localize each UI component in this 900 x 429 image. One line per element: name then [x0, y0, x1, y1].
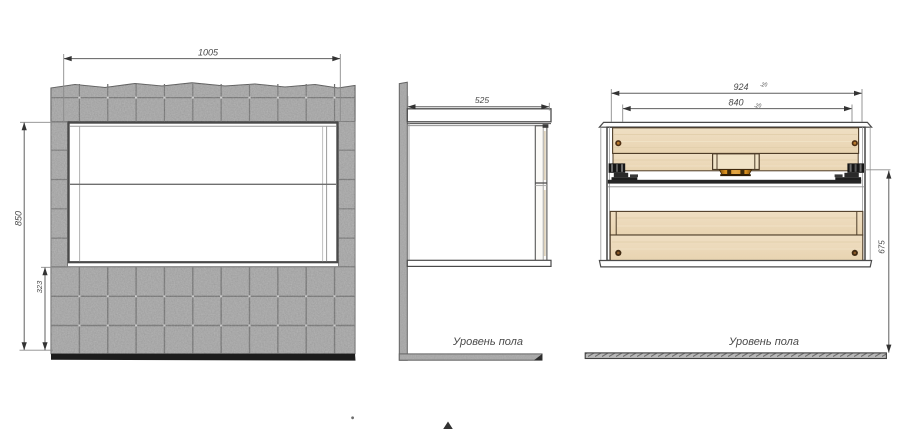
svg-text:-20: -20 [754, 104, 761, 110]
svg-text:Уровень пола: Уровень пола [452, 336, 523, 348]
svg-text:924: 924 [733, 82, 748, 92]
svg-text:850: 850 [13, 211, 23, 226]
svg-text:525: 525 [475, 95, 489, 105]
svg-text:675: 675 [877, 240, 886, 254]
svg-text:Уровень пола: Уровень пола [728, 336, 799, 348]
svg-text:1005: 1005 [198, 48, 219, 58]
svg-text:323: 323 [35, 280, 44, 293]
svg-text:840: 840 [728, 98, 743, 108]
svg-text:-20: -20 [760, 83, 767, 89]
